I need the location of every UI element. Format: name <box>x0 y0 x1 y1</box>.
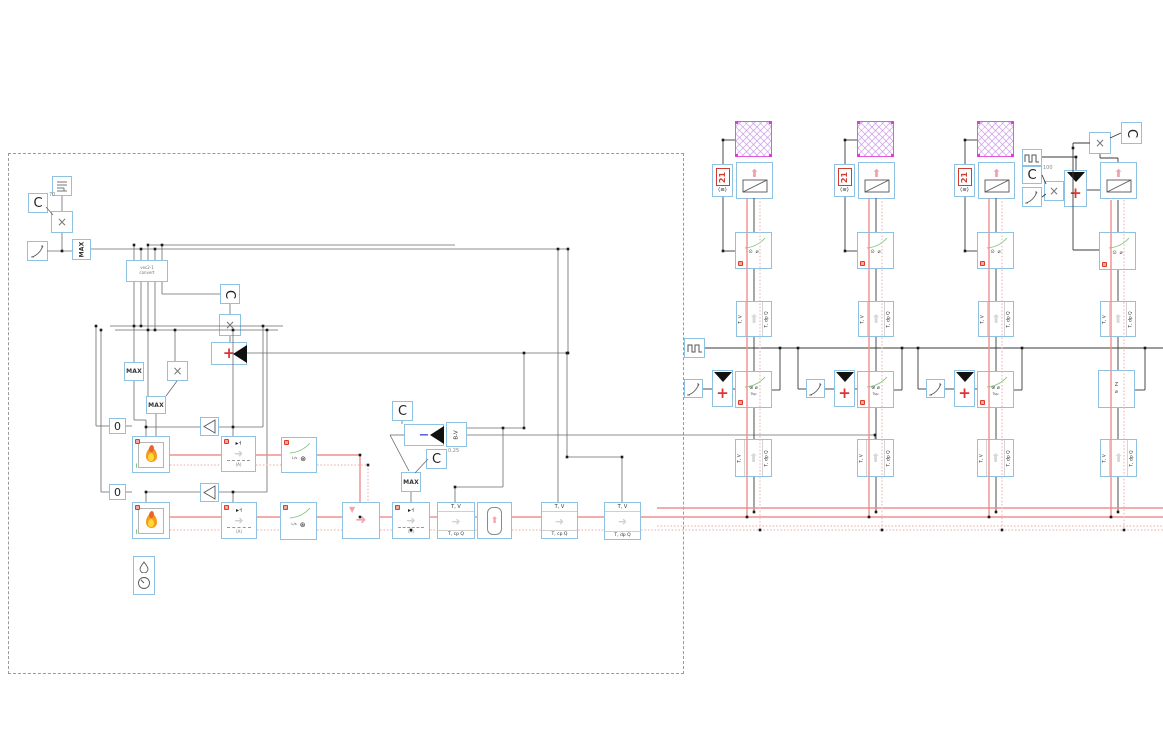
flow-arrow-icon: ➜ <box>234 448 243 459</box>
room-hatch-block[interactable] <box>977 121 1014 157</box>
bv-converter-block[interactable]: B-V <box>446 422 467 447</box>
thb-left-label: T, V <box>739 315 744 323</box>
saturation-curve-icon <box>686 381 702 397</box>
alarm-icon <box>738 400 743 405</box>
pump-curve-icon <box>743 375 769 389</box>
flow-up-arrow-icon: ⬆ <box>1114 168 1123 179</box>
flow-right-arrow-icon: ➜ <box>356 513 367 528</box>
mixing-unit-block[interactable]: ⊙⌀ <box>735 232 772 269</box>
thb-bottom-label: T, cp Q <box>542 530 577 538</box>
constant-value-label: 0.25 <box>448 448 459 454</box>
valve-icon: ▸˧ <box>408 508 414 514</box>
fuel-valve-icon: ⌇ <box>135 530 138 536</box>
valve-icon: ⌀ <box>756 250 759 255</box>
flame-icon <box>146 514 157 528</box>
radiator-unit-block[interactable]: ⊗ ⌀Tsp <box>735 371 772 408</box>
pipe-id-label: (A) <box>398 527 423 534</box>
flow-up-arrow-icon: ⬆ <box>750 168 759 179</box>
multiply-block[interactable]: × <box>1089 132 1111 154</box>
minus-icon: − <box>419 429 430 442</box>
input-triangle-icon <box>836 372 854 382</box>
pipe-valve-block[interactable]: ▸˧➜(A) <box>392 502 430 539</box>
constant-C-block[interactable]: C <box>392 401 413 421</box>
thb-sensor-block[interactable]: T, V➜T, cp Q <box>541 502 578 539</box>
pump-block[interactable]: L/s⊛ <box>281 437 317 473</box>
pulse-generator-block[interactable] <box>684 338 705 358</box>
gain-triangle-icon <box>201 484 218 501</box>
thb-right-label: T, dp Q <box>887 315 892 323</box>
thb-left-label: T, V <box>860 454 865 462</box>
zero-label: 0 <box>114 486 121 499</box>
multiply-block[interactable]: × <box>219 314 241 336</box>
selection-handle <box>891 121 894 124</box>
plus-icon: + <box>838 386 851 401</box>
radiator-unit-block[interactable]: Z⌀ <box>1098 370 1135 408</box>
pipe-id-label: (A) <box>227 460 250 467</box>
gain-triangle-icon <box>201 418 218 435</box>
selection-handle <box>857 121 860 124</box>
flow-up-arrow-icon: ⬆ <box>867 302 885 336</box>
input-triangle-icon <box>430 426 444 444</box>
flow-up-arrow-icon: ⬆ <box>986 440 1005 476</box>
thb-sensor-vertical-block[interactable]: T, V⬆T, dp Q <box>735 439 772 477</box>
input-triangle-icon <box>714 372 732 382</box>
alarm-icon <box>135 505 140 510</box>
vec-label-2: convert <box>139 270 154 275</box>
valve-icon: ⌀ <box>1120 251 1123 256</box>
pump-unit-label: L/s <box>292 456 297 463</box>
alarm-icon <box>860 400 865 405</box>
thb-left-label: T, V <box>980 454 985 462</box>
valve-characteristic-icon <box>1106 179 1132 193</box>
pump-curve-icon <box>288 441 314 455</box>
thb-bottom-label: T, dp Q <box>605 531 640 539</box>
thb-sensor-vertical-block[interactable]: T, V⬆T, dp Q <box>977 439 1014 477</box>
setpoint-label: Tsp <box>750 392 756 396</box>
pump-icon: ⊛ <box>300 522 306 529</box>
saturation-curve-icon <box>30 243 46 259</box>
heating-valve-block[interactable]: ⬆ <box>736 162 773 199</box>
constant-C-rotated-block[interactable]: C <box>220 284 240 304</box>
bv-label: B-V <box>453 430 459 439</box>
saturation-block[interactable] <box>684 379 703 398</box>
pump-icon: ⊙ <box>1112 251 1116 256</box>
constant-label: C <box>398 404 407 419</box>
thb-top-label: T, V <box>438 503 474 512</box>
thb-sensor-vertical-block[interactable]: T, V⬆T, dp Q <box>857 439 894 477</box>
sum-block[interactable]: + <box>211 342 247 365</box>
thb-top-label: T, V <box>542 503 577 512</box>
setpoint-value: 21 <box>960 171 969 182</box>
thb-left-label: T, V <box>738 454 743 462</box>
max-block[interactable]: MAX <box>124 362 144 381</box>
input-triangle-icon <box>1067 172 1085 182</box>
droplet-icon <box>139 561 149 573</box>
selection-handle <box>1011 154 1014 157</box>
room-hatch-block[interactable] <box>735 121 772 157</box>
pump-icon: ⊙ <box>748 250 752 255</box>
zone-label: Z <box>1115 383 1118 388</box>
max-label: MAX <box>148 402 164 409</box>
thb-left-label: T, V <box>861 315 866 323</box>
constant-label: C <box>432 452 441 467</box>
thb-sensor-vertical-block[interactable]: T, V⬆T, dp Q <box>1100 439 1137 477</box>
multiply-icon: × <box>1095 136 1105 150</box>
thb-right-label: T, dp Q <box>765 315 770 323</box>
pulse-generator-block[interactable] <box>1022 149 1042 166</box>
selection-handle <box>977 154 980 157</box>
thb-sensor-block[interactable]: T, V➜T, dp Q <box>604 502 641 540</box>
zero-label: 0 <box>114 420 121 433</box>
pump-icon: ⊛ <box>300 456 306 463</box>
alarm-icon <box>980 261 985 266</box>
input-triangle-icon <box>956 372 974 382</box>
pump-curve-icon <box>865 236 891 250</box>
storage-block[interactable]: ⬆ <box>477 502 512 539</box>
max-block[interactable]: MAX <box>146 396 166 414</box>
pipe-valve-block[interactable]: ▸˧➜(A) <box>221 502 257 539</box>
thb-left-label: T, V <box>1103 454 1108 462</box>
radiator-unit-block[interactable]: ⊗ ⌀Tsp <box>977 371 1014 408</box>
input-triangle-icon <box>233 345 247 363</box>
constant-value-label: 70 <box>49 192 55 198</box>
constant-zero-block[interactable]: 0 <box>109 484 126 500</box>
constant-label: C <box>1027 168 1036 183</box>
flow-arrow-icon: ➜ <box>406 515 415 526</box>
max-block[interactable]: MAX <box>401 472 421 492</box>
alarm-icon <box>860 261 865 266</box>
max-label: MAX <box>78 242 85 258</box>
selection-handle <box>735 121 738 124</box>
selection-handle <box>769 154 772 157</box>
selection-handle <box>977 121 980 124</box>
thb-right-label: T, dp Q <box>1130 454 1135 462</box>
thb-sensor-vertical-block[interactable]: T, V⬆T, dp Q <box>736 301 772 337</box>
multiply-icon: × <box>225 318 235 332</box>
burner-frame <box>138 442 164 468</box>
subtract-block[interactable]: − <box>404 424 444 446</box>
pump-icon: ⊙ <box>870 250 874 255</box>
flow-down-arrow-icon: ▼ <box>349 505 355 514</box>
pipe-id-label: (A) <box>227 527 251 534</box>
saturation-curve-icon <box>928 381 944 397</box>
saturation-curve-icon <box>808 381 824 397</box>
selection-handle <box>1011 121 1014 124</box>
thb-sensor-vertical-block[interactable]: T, V⬆T, dp Q <box>1100 301 1136 337</box>
thb-left-label: T, V <box>1103 315 1108 323</box>
alarm-icon <box>980 400 985 405</box>
setpoint-value: 21 <box>840 171 849 182</box>
thermostat-block[interactable]: 21⟨≡⟩ <box>712 164 733 197</box>
constant-C-block[interactable]: C70 <box>28 193 48 213</box>
multiply-icon: × <box>57 215 67 229</box>
schedule-icon: ⟨≡⟩ <box>960 187 969 193</box>
thermostat-block[interactable]: 21⟨≡⟩ <box>954 164 975 197</box>
max-block-vertical[interactable]: MAX <box>72 239 91 260</box>
alarm-icon <box>135 439 140 444</box>
heating-valve-block[interactable]: ⬆ <box>1100 162 1137 199</box>
pump-curve-icon <box>985 236 1011 250</box>
pipe-valve-block[interactable]: ▸˧➜(A) <box>221 436 256 472</box>
heating-valve-block[interactable]: ⬆ <box>978 162 1015 199</box>
thermostat-block[interactable]: 21⟨≡⟩ <box>834 164 855 197</box>
pulse-wave-icon <box>1024 152 1040 164</box>
pump-curve-icon <box>1107 236 1133 250</box>
curve-source-block[interactable] <box>27 241 48 261</box>
flow-up-arrow-icon: ⬆ <box>744 440 763 476</box>
schedule-icon: ⟨≡⟩ <box>840 187 849 193</box>
thb-right-label: T, dp Q <box>1007 315 1012 323</box>
sum-triangle-block[interactable]: + <box>834 370 855 407</box>
fuel-valve-icon: ⌇ <box>135 464 138 470</box>
constant-label: C <box>33 196 42 211</box>
thb-right-label: T, dp Q <box>765 454 770 462</box>
burner-frame <box>138 508 164 534</box>
alarm-icon <box>224 439 229 444</box>
selection-handle <box>857 154 860 157</box>
thb-top-label: T, V <box>605 503 640 512</box>
gauge-icon <box>137 576 151 590</box>
flow-up-arrow-icon: ⬆ <box>1109 440 1128 476</box>
alarm-icon <box>395 505 400 510</box>
pump-curve-icon <box>288 506 314 520</box>
schedule-icon: ⟨≡⟩ <box>718 187 727 193</box>
three-way-valve-block[interactable]: ▼➜ <box>342 502 380 539</box>
multiply-block[interactable]: × <box>167 361 188 381</box>
gain-left-block[interactable] <box>200 417 219 436</box>
alarm-icon <box>1102 262 1107 267</box>
pulse-wave-icon <box>687 342 703 354</box>
multiply-block[interactable]: × <box>1044 181 1064 201</box>
max-label: MAX <box>403 479 419 486</box>
flame-icon <box>146 448 157 462</box>
valve-icon: ⌀ <box>1115 390 1118 395</box>
thb-right-label: T, dp Q <box>1007 454 1012 462</box>
valve-icon: ▸˧ <box>236 508 242 514</box>
pump-curve-icon <box>743 236 769 250</box>
pump-curve-icon <box>985 375 1011 389</box>
saturation-curve-icon <box>1024 189 1040 205</box>
gain-left-block[interactable] <box>200 483 219 502</box>
constant-value-label: 100 <box>1043 165 1053 171</box>
constant-C-rotated-block[interactable]: C <box>1121 122 1142 144</box>
flow-up-arrow-icon: ⬆ <box>987 302 1005 336</box>
valve-characteristic-icon <box>864 179 890 193</box>
constant-C-block[interactable]: C100 <box>1022 166 1042 184</box>
valve-characteristic-icon <box>984 179 1010 193</box>
alarm-icon <box>738 261 743 266</box>
thb-sensor-vertical-block[interactable]: T, V⬆T, dp Q <box>858 301 894 337</box>
flow-up-arrow-icon: ⬆ <box>1109 302 1127 336</box>
max-label: MAX <box>126 368 142 375</box>
plus-icon: + <box>1069 186 1082 201</box>
pressure-gauge-block[interactable] <box>133 556 155 595</box>
valve-icon: ⌀ <box>998 250 1001 255</box>
stairs-table-icon <box>55 179 69 193</box>
valve-characteristic-icon <box>742 179 768 193</box>
constant-label-rotated: C <box>1124 128 1139 137</box>
multiply-icon: × <box>1049 184 1059 198</box>
boiler-block[interactable]: ⌇ <box>132 502 170 539</box>
constant-C-block[interactable]: C0.25 <box>426 449 447 469</box>
saturation-block[interactable] <box>806 379 825 398</box>
multiply-block[interactable]: × <box>51 211 73 233</box>
subsystem-boundary <box>8 153 684 674</box>
flow-arrow-icon: ➜ <box>605 512 640 531</box>
radiator-unit-block[interactable]: ⊗ ⌀Tsp <box>857 371 894 408</box>
mixing-unit-block[interactable]: ⊙⌀ <box>977 232 1014 269</box>
pump-icon: ⊙ <box>990 250 994 255</box>
thb-right-label: T, dp Q <box>1129 315 1134 323</box>
simulation-canvas[interactable]: C70×MAXvec2-1convertC×+MAX×MAX0⌇▸˧➜(A)L/… <box>0 0 1163 738</box>
heating-valve-block[interactable]: ⬆ <box>858 162 895 199</box>
sum-triangle-block[interactable]: + <box>712 370 733 407</box>
plus-icon: + <box>716 386 729 401</box>
thb-right-label: T, dp Q <box>887 454 892 462</box>
alarm-icon <box>224 505 229 510</box>
setpoint-frame: 21 <box>958 168 972 186</box>
thb-sensor-block[interactable]: T, V➜T, cp Q <box>437 502 475 539</box>
selection-handle <box>891 154 894 157</box>
selection-handle <box>769 121 772 124</box>
storage-vessel-icon: ⬆ <box>487 507 502 535</box>
setpoint-frame: 21 <box>838 168 852 186</box>
thb-bottom-label: T, cp Q <box>438 530 474 538</box>
plus-icon: + <box>958 386 971 401</box>
vector-converter-block[interactable]: vec2-1convert <box>126 260 168 282</box>
pump-unit-label: L/s <box>291 522 296 529</box>
flow-up-arrow-icon: ⬆ <box>992 168 1001 179</box>
flow-arrow-icon: ➜ <box>542 512 577 530</box>
flow-up-arrow-icon: ⬆ <box>745 302 763 336</box>
setpoint-label: Tsp <box>872 392 878 396</box>
constant-zero-block[interactable]: 0 <box>109 418 126 434</box>
saturation-block[interactable] <box>926 379 945 398</box>
mixing-unit-block[interactable]: ⊙⌀ <box>857 232 894 269</box>
boiler-block[interactable]: ⌇ <box>132 436 170 473</box>
sum-triangle-block[interactable]: + <box>1064 170 1087 207</box>
constant-label-rotated: C <box>222 289 237 298</box>
flow-up-arrow-icon: ⬆ <box>872 168 881 179</box>
sum-triangle-block[interactable]: + <box>954 370 975 407</box>
setpoint-frame: 21 <box>716 168 730 186</box>
flow-arrow-icon: ➜ <box>438 512 474 530</box>
flow-arrow-icon: ➜ <box>234 515 243 526</box>
valve-icon: ⌀ <box>878 250 881 255</box>
saturation-block[interactable] <box>1022 187 1042 207</box>
setpoint-value: 21 <box>718 171 727 182</box>
room-hatch-block[interactable] <box>857 121 894 157</box>
multiply-icon: × <box>172 364 182 378</box>
pump-curve-icon <box>865 375 891 389</box>
setpoint-label: Tsp <box>992 392 998 396</box>
flow-up-arrow-icon: ⬆ <box>491 516 499 526</box>
selection-handle <box>735 154 738 157</box>
mixing-unit-block[interactable]: ⊙⌀ <box>1099 232 1136 270</box>
flow-up-arrow-icon: ⬆ <box>866 440 885 476</box>
thb-left-label: T, V <box>981 315 986 323</box>
thb-sensor-vertical-block[interactable]: T, V⬆T, dp Q <box>978 301 1014 337</box>
pump-block[interactable]: L/s⊛ <box>280 502 317 540</box>
